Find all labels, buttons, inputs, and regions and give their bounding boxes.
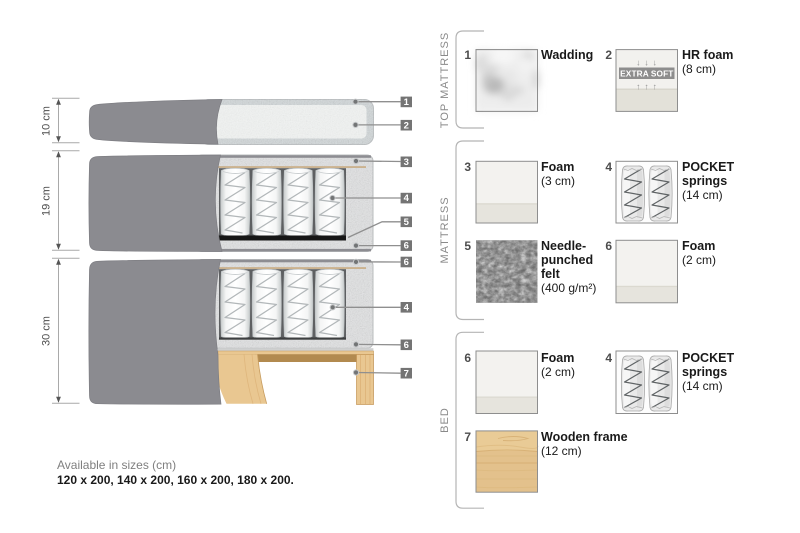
svg-text:↑↑↑: ↑↑↑ (636, 82, 661, 92)
svg-text:EXTRA SOFT: EXTRA SOFT (620, 68, 673, 78)
svg-text:↓↓↓: ↓↓↓ (636, 58, 661, 68)
